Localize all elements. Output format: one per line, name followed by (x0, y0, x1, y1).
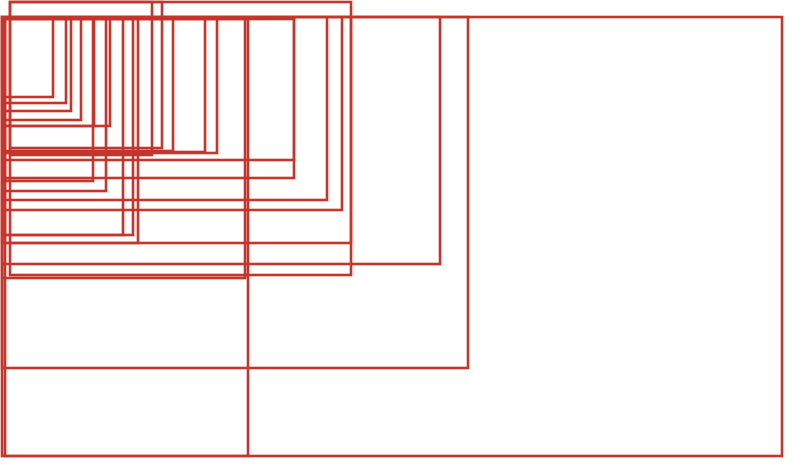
nested-rectangles-diagram (0, 0, 800, 475)
rect-02 (2, 17, 66, 103)
rect-04 (2, 17, 81, 120)
rect-07 (2, 17, 93, 181)
rect-24 (5, 19, 248, 456)
rect-25 (2, 17, 440, 264)
rect-01 (5, 19, 53, 97)
rectangles-svg-canvas (0, 0, 800, 475)
rect-17 (2, 17, 294, 160)
rect-15 (2, 17, 205, 152)
rect-14 (2, 17, 173, 151)
rect-27 (2, 17, 782, 456)
rect-19 (2, 17, 327, 200)
